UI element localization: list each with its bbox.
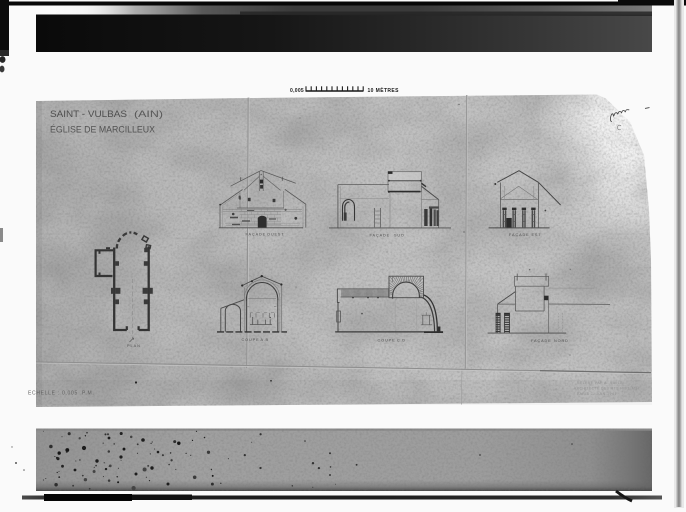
svg-text:EST: EST bbox=[532, 233, 542, 237]
svg-text:SAINT - VULBAS: SAINT - VULBAS bbox=[50, 109, 127, 119]
svg-text:FAÇADE: FAÇADE bbox=[246, 233, 267, 237]
svg-text:PARIS — JUIN 1941: PARIS — JUIN 1941 bbox=[577, 392, 617, 396]
svg-text:10 MÈTRES: 10 MÈTRES bbox=[368, 86, 400, 94]
svg-text:COUPE: COUPE bbox=[242, 338, 260, 342]
svg-text:0,005: 0,005 bbox=[290, 88, 304, 94]
svg-text:A.B: A.B bbox=[261, 338, 269, 342]
svg-text:FAÇADE: FAÇADE bbox=[531, 339, 552, 343]
svg-text:C.D: C.D bbox=[397, 339, 406, 343]
svg-text:FAÇADE: FAÇADE bbox=[370, 234, 391, 238]
svg-text:RELEVE PAR A. SALLE: RELEVE PAR A. SALLE bbox=[577, 381, 623, 385]
svg-text:ÉGLISE DE MARCILLEUX: ÉGLISE DE MARCILLEUX bbox=[50, 125, 155, 135]
svg-text:PLAN: PLAN bbox=[127, 344, 141, 348]
svg-text:COUPE: COUPE bbox=[378, 339, 396, 343]
svg-text:NORD: NORD bbox=[554, 339, 569, 343]
svg-text:(AIN): (AIN) bbox=[134, 109, 163, 119]
svg-text:ARCHITECTE DES MTS HIST. M.H.: ARCHITECTE DES MTS HIST. M.H. bbox=[574, 387, 641, 391]
svg-text:P.M.: P.M. bbox=[82, 391, 94, 397]
svg-text:SUD: SUD bbox=[394, 234, 405, 238]
svg-text:FAÇADE: FAÇADE bbox=[509, 233, 530, 237]
svg-text:ECHELLE : 0,005: ECHELLE : 0,005 bbox=[28, 391, 78, 397]
svg-text:OUEST: OUEST bbox=[267, 233, 285, 237]
